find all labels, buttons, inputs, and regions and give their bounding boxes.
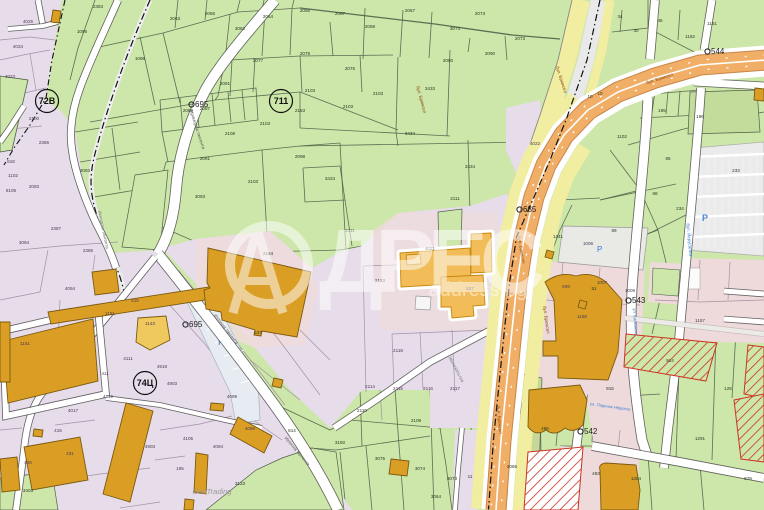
- svg-text:1009: 1009: [625, 288, 636, 293]
- svg-text:2386: 2386: [83, 248, 94, 253]
- svg-text:543: 543: [632, 296, 646, 305]
- svg-text:410: 410: [131, 298, 139, 303]
- svg-text:2116: 2116: [423, 386, 433, 391]
- svg-text:1157: 1157: [695, 318, 705, 323]
- svg-text:2383: 2383: [93, 4, 104, 9]
- svg-text:233: 233: [732, 168, 740, 173]
- svg-text:3093: 3093: [80, 168, 91, 173]
- svg-text:2103: 2103: [343, 104, 354, 109]
- svg-text:30: 30: [633, 28, 639, 33]
- svg-text:4105: 4105: [183, 436, 194, 441]
- svg-text:2114: 2114: [365, 384, 375, 389]
- svg-text:4017: 4017: [68, 408, 79, 413]
- svg-text:3434: 3434: [325, 176, 336, 181]
- svg-text:1102: 1102: [617, 134, 627, 139]
- svg-text:4025: 4025: [23, 19, 34, 24]
- svg-text:2108: 2108: [225, 131, 236, 136]
- svg-text:1291: 1291: [695, 436, 706, 441]
- svg-text:85: 85: [665, 156, 671, 161]
- svg-text:411: 411: [101, 371, 109, 376]
- svg-text:4022: 4022: [530, 141, 541, 146]
- svg-text:196: 196: [696, 114, 704, 119]
- svg-text:4096: 4096: [245, 426, 256, 431]
- svg-text:542: 542: [584, 427, 598, 436]
- svg-text:46: 46: [657, 18, 663, 23]
- svg-text:3433: 3433: [425, 86, 436, 91]
- svg-text:2066: 2066: [300, 8, 311, 13]
- svg-text:2076: 2076: [345, 66, 356, 71]
- svg-text:9108: 9108: [6, 188, 17, 193]
- svg-text:711: 711: [274, 96, 289, 106]
- svg-text:4918: 4918: [157, 364, 168, 369]
- svg-text:195: 195: [176, 466, 184, 471]
- svg-text:1151: 1151: [20, 341, 30, 346]
- svg-text:2103: 2103: [248, 179, 259, 184]
- svg-text:P: P: [702, 213, 708, 223]
- svg-text:695: 695: [195, 100, 209, 109]
- svg-text:4119: 4119: [103, 394, 113, 399]
- svg-text:68: 68: [652, 191, 658, 196]
- svg-text:496: 496: [541, 426, 549, 431]
- svg-text:426: 426: [24, 460, 32, 465]
- svg-text:125: 125: [724, 386, 732, 391]
- svg-text:1096: 1096: [77, 29, 88, 34]
- svg-text:2067: 2067: [405, 8, 416, 13]
- svg-text:2077: 2077: [253, 58, 264, 63]
- svg-text:3434: 3434: [405, 131, 416, 136]
- svg-text:3075: 3075: [375, 456, 386, 461]
- svg-text:2387: 2387: [51, 226, 62, 231]
- svg-text:2153: 2153: [295, 108, 306, 113]
- svg-text:4903: 4903: [167, 381, 178, 386]
- svg-text:10: 10: [597, 91, 603, 96]
- svg-text:695: 695: [189, 320, 203, 329]
- svg-text:10: 10: [587, 94, 593, 99]
- svg-text:34: 34: [617, 14, 623, 19]
- svg-text:2091: 2091: [220, 81, 231, 86]
- svg-text:4094: 4094: [65, 286, 76, 291]
- svg-text:234: 234: [676, 206, 684, 211]
- svg-text:1007: 1007: [597, 280, 608, 285]
- svg-text:2066: 2066: [205, 11, 216, 16]
- svg-text:2068: 2068: [365, 24, 376, 29]
- svg-text:879: 879: [744, 476, 752, 481]
- svg-text:1006: 1006: [583, 241, 594, 246]
- svg-text:2118: 2118: [393, 348, 403, 353]
- svg-text:3123: 3123: [235, 481, 246, 486]
- svg-text:address.bg: address.bg: [429, 279, 528, 301]
- svg-text:3434: 3434: [465, 164, 476, 169]
- svg-text:2110: 2110: [357, 408, 367, 413]
- svg-text:2067: 2067: [335, 11, 346, 16]
- svg-text:2103: 2103: [260, 121, 271, 126]
- svg-text:11: 11: [468, 474, 473, 479]
- svg-text:914: 914: [666, 358, 674, 363]
- svg-text:1143: 1143: [145, 321, 155, 326]
- svg-text:2108: 2108: [411, 418, 422, 423]
- svg-text:2073: 2073: [515, 36, 526, 41]
- svg-text:1152: 1152: [685, 34, 695, 39]
- svg-text:3066: 3066: [507, 464, 518, 469]
- svg-text:3093: 3093: [195, 194, 206, 199]
- svg-text:1151: 1151: [105, 311, 115, 316]
- svg-text:609: 609: [562, 284, 570, 289]
- svg-text:1241: 1241: [553, 234, 564, 239]
- svg-text:2100: 2100: [29, 116, 40, 121]
- svg-text:2091: 2091: [200, 156, 211, 161]
- svg-text:2064: 2064: [263, 14, 274, 19]
- svg-text:2090: 2090: [485, 51, 496, 56]
- svg-text:1188: 1188: [577, 314, 587, 319]
- svg-text:74Ц: 74Ц: [137, 378, 154, 388]
- svg-text:4099: 4099: [227, 394, 238, 399]
- svg-text:2111: 2111: [450, 196, 460, 201]
- svg-text:537: 537: [254, 330, 262, 335]
- svg-text:51: 51: [591, 286, 597, 291]
- svg-text:3064: 3064: [431, 494, 442, 499]
- svg-text:415: 415: [54, 428, 62, 433]
- svg-text:3074: 3074: [415, 466, 426, 471]
- svg-text:818: 818: [7, 159, 15, 164]
- svg-text:2079: 2079: [300, 51, 311, 56]
- svg-text:2115: 2115: [393, 386, 403, 391]
- svg-text:3073: 3073: [450, 26, 461, 31]
- svg-text:P: P: [597, 245, 602, 254]
- svg-text:1364: 1364: [631, 476, 642, 481]
- svg-text:2098: 2098: [295, 154, 306, 159]
- svg-text:2073: 2073: [475, 11, 486, 16]
- svg-text:3150: 3150: [335, 440, 346, 445]
- svg-text:1096: 1096: [135, 56, 146, 61]
- svg-text:4111: 4111: [123, 356, 133, 361]
- svg-text:2103: 2103: [305, 88, 316, 93]
- svg-text:3063: 3063: [235, 26, 246, 31]
- svg-text:2093: 2093: [29, 184, 40, 189]
- svg-text:1102: 1102: [8, 173, 18, 178]
- svg-text:4094: 4094: [213, 444, 224, 449]
- svg-text:3094: 3094: [19, 240, 30, 245]
- svg-text:483: 483: [592, 471, 600, 476]
- svg-text:3403: 3403: [23, 488, 34, 493]
- svg-text:4023: 4023: [5, 74, 16, 79]
- svg-text:2386: 2386: [39, 140, 50, 145]
- svg-text:814: 814: [288, 428, 296, 433]
- svg-text:2063: 2063: [170, 16, 181, 21]
- svg-text:544: 544: [711, 47, 725, 56]
- svg-text:4034: 4034: [13, 44, 24, 49]
- svg-text:4903: 4903: [145, 444, 156, 449]
- svg-text:1151: 1151: [707, 21, 717, 26]
- svg-text:GeoTrading: GeoTrading: [192, 487, 232, 496]
- svg-text:2103: 2103: [373, 91, 384, 96]
- svg-text:2080: 2080: [443, 58, 454, 63]
- svg-text:3073: 3073: [447, 476, 458, 481]
- svg-text:72В: 72В: [39, 96, 56, 106]
- svg-text:2117: 2117: [450, 386, 460, 391]
- svg-text:89: 89: [611, 228, 617, 233]
- svg-text:195: 195: [658, 108, 666, 113]
- svg-text:431: 431: [66, 451, 74, 456]
- svg-text:915: 915: [606, 386, 614, 391]
